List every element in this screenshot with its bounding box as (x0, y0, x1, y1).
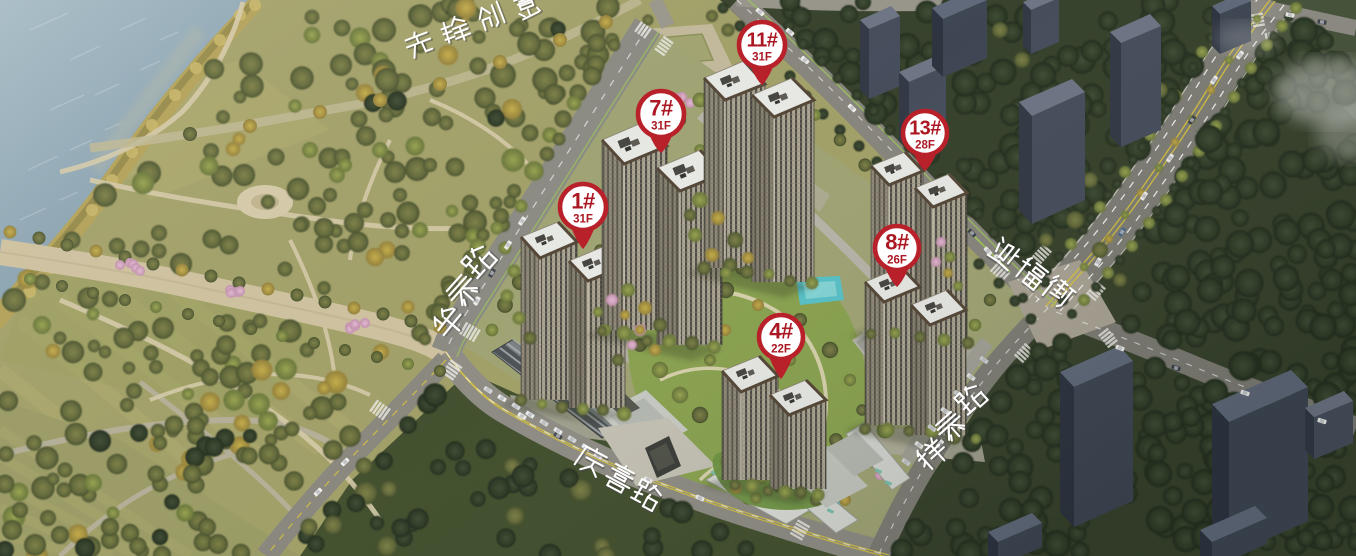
svg-text:11#: 11# (747, 30, 778, 52)
svg-text:4#: 4# (769, 319, 793, 344)
svg-text:1#: 1# (571, 189, 595, 214)
svg-text:13#: 13# (909, 118, 941, 140)
svg-text:7#: 7# (649, 96, 673, 121)
svg-text:8#: 8# (885, 230, 909, 255)
svg-text:31F: 31F (651, 121, 671, 133)
svg-text:22F: 22F (771, 344, 791, 356)
svg-text:31F: 31F (573, 214, 593, 226)
svg-text:31F: 31F (752, 52, 772, 64)
svg-text:28F: 28F (915, 140, 935, 152)
svg-text:26F: 26F (887, 255, 907, 267)
